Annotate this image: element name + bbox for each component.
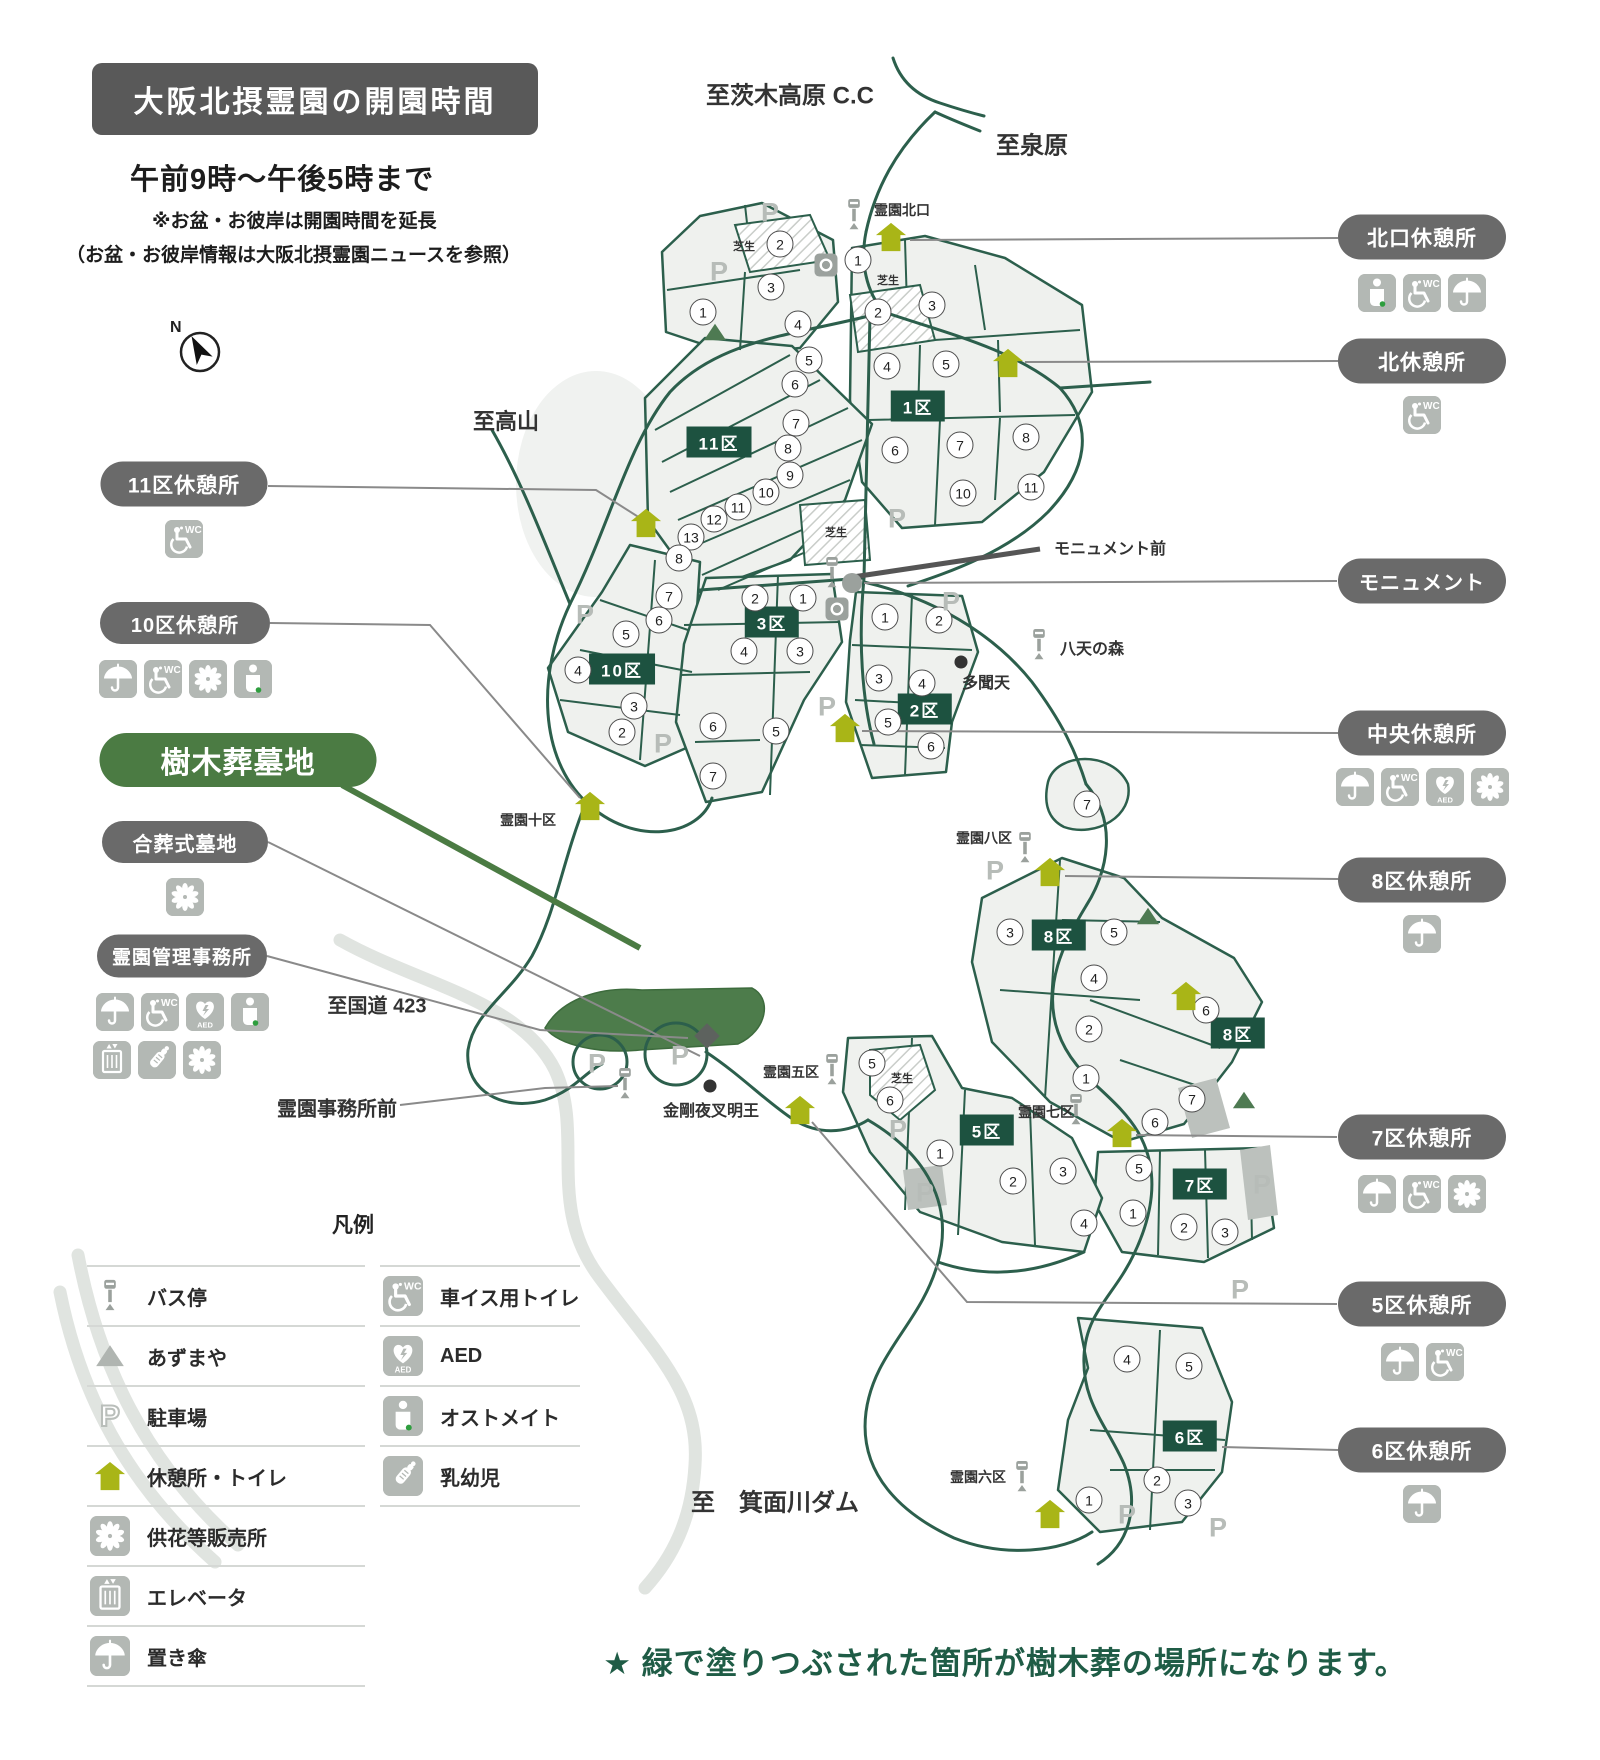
svg-text:WC: WC xyxy=(185,525,202,536)
plot-number: 1 xyxy=(790,585,817,612)
plot-number: 5 xyxy=(1176,1353,1203,1380)
parking-icon: P xyxy=(576,602,594,629)
map-label: 芝生 xyxy=(733,238,755,254)
plot-number: 3 xyxy=(919,292,946,319)
resthouse-icon xyxy=(992,348,1024,378)
amenity-icon-row: WCAED xyxy=(1336,768,1509,806)
wheelchair-wc-icon: WC xyxy=(165,520,203,558)
umbrella-icon xyxy=(1381,1343,1419,1381)
plot-number: 6 xyxy=(882,437,909,464)
poi-dot-icon xyxy=(703,1079,717,1093)
zone-badge-10区: 10区 xyxy=(589,654,655,685)
map-label: 霊園北口 xyxy=(874,200,930,220)
resthouse-icon xyxy=(784,1095,816,1125)
plot-number: 1 xyxy=(1073,1065,1100,1092)
zone-badge-7区: 7区 xyxy=(1173,1169,1227,1200)
umbrella-icon xyxy=(1448,274,1486,312)
plot-number: 4 xyxy=(909,670,936,697)
callout-pill-gassoshiki: 合葬式墓地 xyxy=(102,821,268,863)
parking-icon: P xyxy=(671,1043,689,1070)
plot-number: 6 xyxy=(877,1087,904,1114)
plot-number: 7 xyxy=(783,410,810,437)
flower-icon xyxy=(1448,1175,1486,1213)
flower-icon xyxy=(183,1041,221,1079)
ostomate-icon xyxy=(234,660,272,698)
amenity-icon-row xyxy=(1403,1485,1441,1523)
parking-icon: P xyxy=(588,1051,606,1078)
map-label: 霊園事務所前 xyxy=(277,1093,397,1122)
parking-icon: P xyxy=(710,259,728,286)
parking-icon: P xyxy=(916,1180,934,1207)
resthouse-icon xyxy=(1034,1499,1066,1529)
plot-number: 6 xyxy=(918,733,945,760)
plot-number: 5 xyxy=(859,1050,886,1077)
amenity-icon-row: WC xyxy=(165,520,203,558)
map-label: 霊園八区 xyxy=(956,828,1012,848)
plot-number: 3 xyxy=(1050,1158,1077,1185)
amenity-icon-row: WCAED xyxy=(96,993,269,1031)
zone-badge-6区: 6区 xyxy=(1163,1421,1217,1452)
plot-number: 7 xyxy=(700,763,727,790)
map-label: 多聞天 xyxy=(962,669,1010,693)
plot-number: 2 xyxy=(609,719,636,746)
callout-pill-jumokuso: 樹木葬墓地 xyxy=(100,733,377,787)
flower-icon xyxy=(1471,768,1509,806)
aed-icon: AED xyxy=(1426,768,1464,806)
pavilion-icon xyxy=(1232,1090,1256,1110)
plot-number: 1 xyxy=(1120,1200,1147,1227)
zone-badge-11区: 11区 xyxy=(687,427,752,458)
amenity-icon-row xyxy=(166,878,204,916)
plot-number: 4 xyxy=(565,657,592,684)
resthouse-icon xyxy=(1034,857,1066,887)
plot-number: 4 xyxy=(731,638,758,665)
plot-number: 1 xyxy=(845,247,872,274)
wheelchair-wc-icon: WC xyxy=(1403,396,1441,434)
bus-stop-icon xyxy=(1068,1093,1084,1127)
plot-number: 3 xyxy=(787,638,814,665)
amenity-icon-row: WC xyxy=(99,660,272,698)
plot-number: 4 xyxy=(874,353,901,380)
amenity-icon-row: WC xyxy=(1358,274,1486,312)
zone-badge-8区: 8区 xyxy=(1032,920,1086,951)
map-label: 芝生 xyxy=(877,272,899,288)
plot-number: 3 xyxy=(758,274,785,301)
callout-pill-6ku-rest: 6区休憩所 xyxy=(1338,1428,1506,1473)
plot-number: 5 xyxy=(613,621,640,648)
bus-stop-icon xyxy=(846,198,862,232)
bus-stop-icon xyxy=(824,556,840,590)
callout-pill-10ku-rest: 10区休憩所 xyxy=(100,602,270,644)
svg-text:AED: AED xyxy=(197,1021,213,1030)
plot-number: 10 xyxy=(950,480,977,507)
callout-pill-11ku-rest: 11区休憩所 xyxy=(101,462,268,507)
zone-badge-1区: 1区 xyxy=(891,391,945,422)
umbrella-icon xyxy=(1336,768,1374,806)
plot-number: 3 xyxy=(997,919,1024,946)
plot-number: 1 xyxy=(872,604,899,631)
parking-icon: P xyxy=(889,1117,907,1144)
resthouse-icon xyxy=(875,222,907,252)
plot-number: 2 xyxy=(1076,1016,1103,1043)
amenity-icon-row xyxy=(93,1041,221,1079)
plot-number: 6 xyxy=(1142,1109,1169,1136)
ostomate-icon xyxy=(231,993,269,1031)
zone-badge-5区: 5区 xyxy=(960,1115,1014,1146)
zone-badge-2区: 2区 xyxy=(898,694,952,725)
resthouse-icon xyxy=(829,713,861,743)
plot-number: 2 xyxy=(1171,1214,1198,1241)
plot-number: 6 xyxy=(782,371,809,398)
svg-text:WC: WC xyxy=(164,665,181,676)
umbrella-icon xyxy=(1358,1175,1396,1213)
map-label: 至高山 xyxy=(473,404,539,436)
poi-dot-icon xyxy=(954,655,968,669)
parking-icon: P xyxy=(1231,1277,1249,1304)
plot-number: 10 xyxy=(753,479,780,506)
map-label: 芝生 xyxy=(891,1070,913,1086)
plot-number: 5 xyxy=(875,709,902,736)
plot-number: 9 xyxy=(777,462,804,489)
callout-pill-7ku-rest: 7区休憩所 xyxy=(1338,1115,1506,1160)
plot-number: 8 xyxy=(1013,424,1040,451)
plot-number: 2 xyxy=(767,231,794,258)
map-label: 霊園十区 xyxy=(500,810,556,830)
flower-icon xyxy=(189,660,227,698)
callout-pill-5ku-rest: 5区休憩所 xyxy=(1338,1282,1506,1327)
resthouse-icon xyxy=(1106,1118,1138,1148)
map-label: 霊園七区 xyxy=(1018,1102,1074,1122)
plot-number: 2 xyxy=(1144,1467,1171,1494)
plot-number: 2 xyxy=(742,585,769,612)
umbrella-icon xyxy=(1403,915,1441,953)
plot-number: 4 xyxy=(1114,1346,1141,1373)
parking-icon: P xyxy=(888,506,906,533)
plot-number: 8 xyxy=(666,545,693,572)
plot-number: 11 xyxy=(725,494,752,521)
bus-stop-icon xyxy=(1014,1460,1030,1494)
svg-text:WC: WC xyxy=(1446,1348,1463,1359)
wheelchair-wc-icon: WC xyxy=(144,660,182,698)
bus-stop-icon xyxy=(1017,831,1033,865)
baby-icon xyxy=(138,1041,176,1079)
svg-text:WC: WC xyxy=(1423,279,1440,290)
wheelchair-wc-icon: WC xyxy=(1403,274,1441,312)
plot-number: 3 xyxy=(621,693,648,720)
bus-stop-icon xyxy=(617,1067,633,1101)
monument-icon xyxy=(841,572,863,594)
plot-number: 5 xyxy=(1101,919,1128,946)
plot-number: 7 xyxy=(1179,1086,1206,1113)
facility-icon xyxy=(815,254,838,277)
plot-number: 2 xyxy=(865,299,892,326)
callout-pill-kanri-jimusho: 霊園管理事務所 xyxy=(97,935,267,978)
callout-pill-kita-rest: 北休憩所 xyxy=(1338,339,1506,384)
plot-number: 4 xyxy=(1071,1210,1098,1237)
wheelchair-wc-icon: WC xyxy=(141,993,179,1031)
wheelchair-wc-icon: WC xyxy=(1403,1175,1441,1213)
callout-pill-8ku-rest: 8区休憩所 xyxy=(1338,858,1506,903)
zone-badge-8区: 8区 xyxy=(1211,1018,1265,1049)
plot-number: 2 xyxy=(1000,1168,1027,1195)
callout-pill-kitaguchi-rest: 北口休憩所 xyxy=(1338,215,1506,260)
resthouse-icon xyxy=(1170,981,1202,1011)
map-label: 至茨木高原 C.C xyxy=(706,76,874,111)
amenity-icon-row: WC xyxy=(1381,1343,1464,1381)
map-label: 至泉原 xyxy=(996,126,1068,161)
svg-text:WC: WC xyxy=(1423,401,1440,412)
amenity-icon-row xyxy=(1403,915,1441,953)
umbrella-icon xyxy=(99,660,137,698)
callout-pill-chuo-rest: 中央休憩所 xyxy=(1338,711,1506,756)
pavilion-icon xyxy=(1136,906,1160,926)
office-building-icon xyxy=(692,1021,722,1051)
svg-text:AED: AED xyxy=(1437,796,1453,805)
parking-icon: P xyxy=(1209,1515,1227,1542)
map-label: 霊園六区 xyxy=(950,1467,1006,1487)
plot-number: 7 xyxy=(947,432,974,459)
plot-number: 11 xyxy=(1018,474,1045,501)
plot-number: 6 xyxy=(700,713,727,740)
parking-icon: P xyxy=(1118,1502,1136,1529)
parking-icon: P xyxy=(654,731,672,758)
plot-number: 3 xyxy=(1175,1490,1202,1517)
aed-icon: AED xyxy=(186,993,224,1031)
svg-text:WC: WC xyxy=(1423,1180,1440,1191)
pavilion-icon xyxy=(703,322,727,342)
umbrella-icon xyxy=(1403,1485,1441,1523)
map-label: 至 箕面川ダム xyxy=(691,1483,859,1518)
plot-number: 3 xyxy=(866,665,893,692)
plot-number: 4 xyxy=(785,311,812,338)
ostomate-icon xyxy=(1358,274,1396,312)
wheelchair-wc-icon: WC xyxy=(1381,768,1419,806)
plot-number: 5 xyxy=(1126,1155,1153,1182)
bus-stop-icon xyxy=(824,1053,840,1087)
umbrella-icon xyxy=(96,993,134,1031)
plot-number: 1 xyxy=(927,1140,954,1167)
callout-pill-monument: モニュメント xyxy=(1338,559,1506,604)
parking-icon: P xyxy=(942,589,960,616)
parking-icon: P xyxy=(986,858,1004,885)
resthouse-icon xyxy=(574,791,606,821)
map-label: モニュメント前 xyxy=(1054,535,1166,559)
facility-icon xyxy=(826,598,849,621)
amenity-icon-row: WC xyxy=(1403,396,1441,434)
plot-number: 1 xyxy=(1076,1487,1103,1514)
parking-icon: P xyxy=(761,200,779,227)
plot-number: 4 xyxy=(1081,965,1108,992)
map-label: 至国道 423 xyxy=(328,990,427,1019)
svg-text:WC: WC xyxy=(1401,773,1418,784)
plot-number: 7 xyxy=(656,583,683,610)
amenity-icon-row: WC xyxy=(1358,1175,1486,1213)
cemetery-map-page: N 大阪北摂霊園の開園時間 午前9時〜午後5時まで ※お盆・お彼岸は開園時間を延… xyxy=(0,0,1600,1760)
plot-number: 3 xyxy=(1212,1219,1239,1246)
elevator-icon xyxy=(93,1041,131,1079)
map-label: 芝生 xyxy=(825,524,847,540)
svg-text:WC: WC xyxy=(161,998,178,1009)
plot-number: 7 xyxy=(1074,791,1101,818)
plot-number: 5 xyxy=(933,351,960,378)
parking-icon: P xyxy=(1253,1172,1271,1199)
plot-number: 6 xyxy=(646,607,673,634)
plot-number: 5 xyxy=(763,718,790,745)
map-label: 金剛夜叉明王 xyxy=(663,1097,759,1121)
plot-number: 12 xyxy=(701,506,728,533)
map-label: 八天の森 xyxy=(1060,635,1124,659)
wheelchair-wc-icon: WC xyxy=(1426,1343,1464,1381)
plot-number: 5 xyxy=(796,347,823,374)
map-label: 霊園五区 xyxy=(763,1062,819,1082)
map-overlay: 至茨木高原 C.C至泉原至高山至国道 423至 箕面川ダム霊園北口モニュメント前… xyxy=(0,0,1600,1760)
flower-icon xyxy=(166,878,204,916)
plot-number: 8 xyxy=(775,435,802,462)
resthouse-icon xyxy=(630,508,662,538)
bus-stop-icon xyxy=(1031,628,1047,662)
